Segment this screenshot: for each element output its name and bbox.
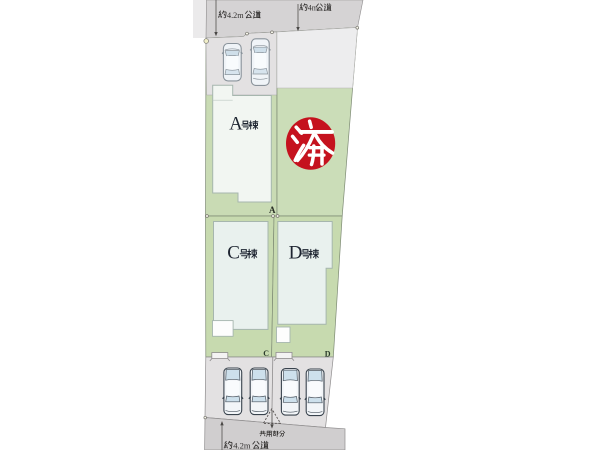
svg-text:C: C (227, 242, 240, 263)
svg-text:4.2m: 4.2m (233, 440, 251, 450)
svg-text:C: C (263, 349, 269, 358)
svg-text:4.2m: 4.2m (227, 11, 244, 20)
svg-text:A: A (269, 205, 276, 215)
svg-text:4m: 4m (308, 4, 319, 13)
svg-text:A: A (229, 114, 243, 134)
svg-text:D: D (325, 349, 331, 358)
svg-text:D: D (289, 243, 303, 264)
